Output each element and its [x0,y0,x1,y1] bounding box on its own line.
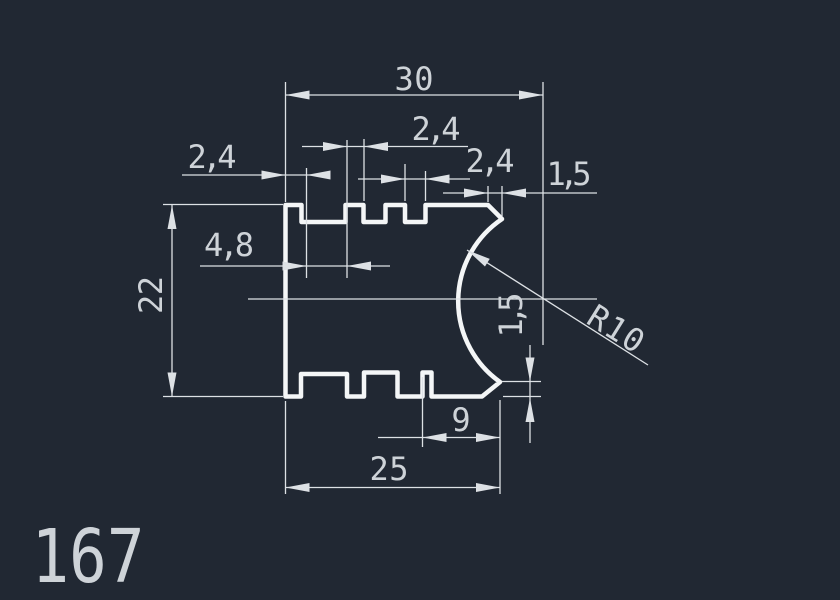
dimension-arrow-icon [526,358,535,382]
dimension-arrow-icon [423,433,447,442]
dim-label-left-tab: 2,4 [188,138,237,176]
dimension-arrow-icon [476,483,500,492]
dimension-arrow-icon [262,171,286,180]
dimension-arrow-icon [526,398,535,422]
dim-label-slot: 4,8 [204,226,254,264]
dim-slot: 4,8 [200,226,390,271]
dim-label-bottom-width: 25 [370,450,409,488]
dim-label-right-chamfer: 1,5 [492,293,530,338]
technical-drawing: 30 2,4 2,4 2,4 1,5 4 [0,0,840,600]
cad-drawing-canvas: 30 2,4 2,4 2,4 1,5 4 [0,0,840,600]
dimension-arrow-icon [286,91,310,100]
profile-outline [286,205,503,397]
dimension-arrow-icon [464,189,488,198]
dim-notch: 2,4 [358,142,515,201]
dim-label-top-chamfer: 1,5 [547,155,592,193]
dimension-arrow-icon [286,483,310,492]
dim-label-arc-radius: R10 [580,297,651,361]
dimension-arrow-icon [364,142,388,151]
dimension-arrow-icon [168,373,177,397]
dimension-arrow-icon [519,91,543,100]
dimension-arrow-icon [381,175,405,184]
dimension-arrow-icon [426,175,450,184]
dimension-arrow-icon [283,262,307,271]
dim-tooth: 2,4 [302,110,468,278]
dimension-arrow-icon [323,142,347,151]
dim-label-tooth: 2,4 [412,110,461,148]
dimension-arrow-icon [476,433,500,442]
dimension-arrow-icon [168,205,177,229]
dimension-arrow-icon [347,262,371,271]
dimension-arrow-icon [502,189,526,198]
dim-label-overall-height: 22 [132,276,170,314]
dim-label-notch: 2,4 [466,142,515,180]
dimension-arrow-icon [307,171,331,180]
dim-label-bottom-offset: 9 [451,401,470,439]
dim-label-overall-width: 30 [395,60,434,98]
part-number-label: 167 [32,514,145,600]
